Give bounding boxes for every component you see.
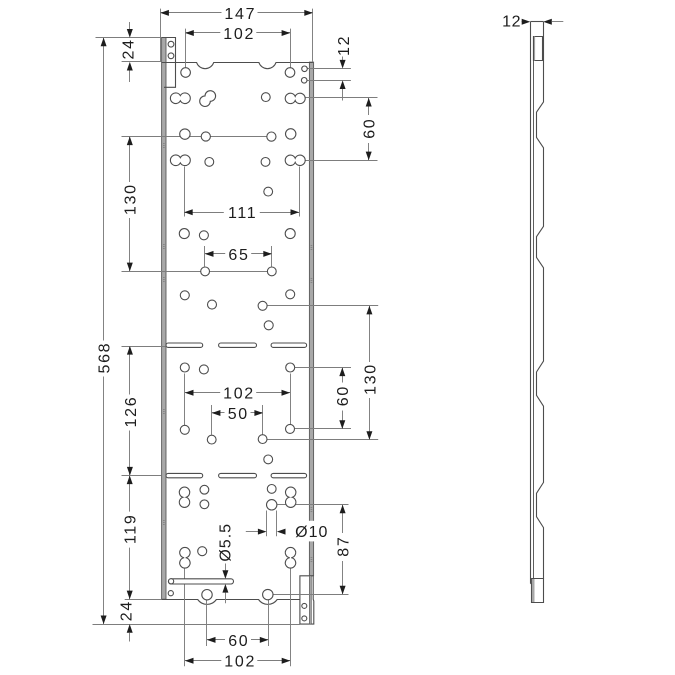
svg-text:60: 60: [228, 633, 249, 650]
svg-text:102: 102: [224, 654, 256, 671]
svg-text:24: 24: [121, 38, 138, 59]
svg-text:147: 147: [224, 6, 256, 23]
svg-text:12: 12: [336, 35, 353, 56]
svg-text:87: 87: [336, 535, 353, 556]
svg-text:Ø5.5: Ø5.5: [218, 523, 235, 562]
svg-text:24: 24: [119, 600, 136, 621]
svg-text:60: 60: [335, 385, 352, 406]
svg-text:65: 65: [228, 247, 249, 264]
svg-text:130: 130: [123, 183, 140, 215]
svg-text:111: 111: [228, 205, 257, 222]
svg-text:119: 119: [122, 513, 139, 544]
svg-text:60: 60: [362, 118, 379, 139]
svg-text:568: 568: [96, 342, 113, 374]
svg-text:130: 130: [362, 363, 379, 395]
svg-text:102: 102: [223, 386, 255, 403]
svg-text:12: 12: [502, 13, 521, 30]
svg-text:102: 102: [223, 26, 255, 43]
svg-text:Ø10: Ø10: [295, 524, 328, 541]
svg-text:50: 50: [228, 406, 249, 423]
svg-text:126: 126: [123, 396, 140, 428]
